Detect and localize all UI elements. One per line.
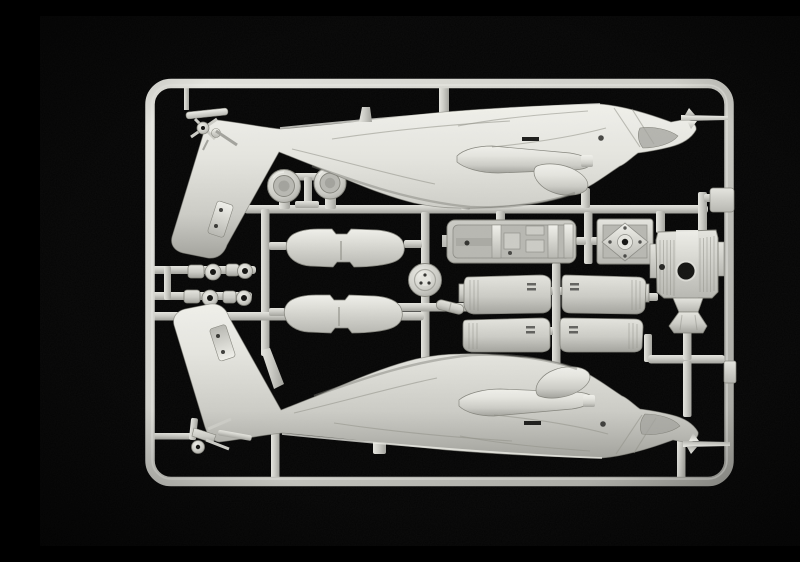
vignette-overlay [40,16,800,546]
sprue-photo [40,16,800,546]
sprue-photo-svg [40,16,800,546]
